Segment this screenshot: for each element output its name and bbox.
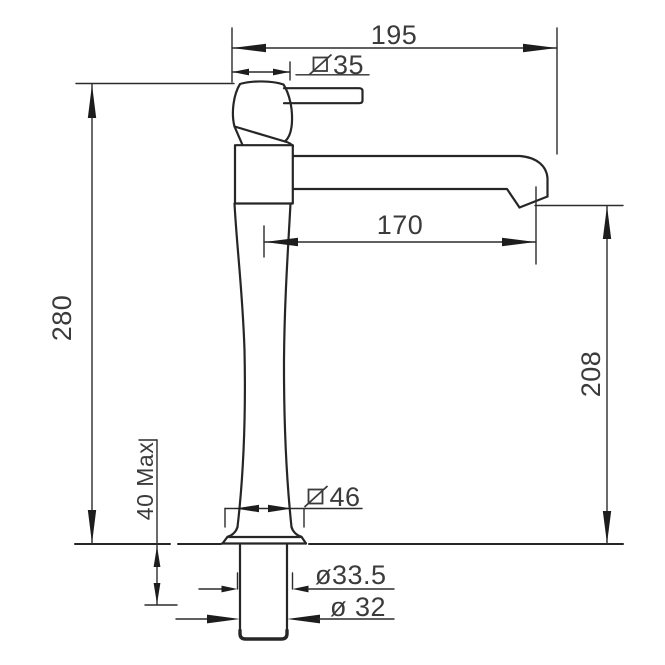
arrowhead-left <box>232 44 266 52</box>
dimension-label-46: 46 <box>330 482 361 512</box>
arrowhead-right <box>273 69 290 76</box>
shank-bottom-cap <box>240 631 287 640</box>
dimension-label-195: 195 <box>371 20 418 50</box>
body-right-profile <box>284 204 292 528</box>
handle-lever <box>284 88 363 103</box>
cartridge-neck <box>235 145 293 203</box>
dimension-base-diameter: 46 <box>225 482 362 527</box>
diameter-icon <box>310 55 332 75</box>
dimension-label-40-max: 40 Max <box>132 442 158 520</box>
dimension-spout-reach: 170 <box>264 187 536 264</box>
dimension-handle-diameter: 35 <box>232 50 369 80</box>
arrowhead-down <box>603 511 611 544</box>
handle-knob-outline <box>233 81 292 141</box>
arrowhead-down <box>88 510 96 544</box>
dimension-deck-thickness: 40 Max <box>132 440 177 605</box>
dimension-label-208: 208 <box>576 351 606 398</box>
arrowhead-right-pointing <box>222 586 238 593</box>
diameter-icon <box>305 486 328 507</box>
dimension-label-33-5: ø33.5 <box>315 560 387 590</box>
technical-drawing-canvas: 195 35 170 280 208 <box>0 0 665 665</box>
base-flare-left <box>223 527 238 544</box>
spout-upper-edge <box>293 156 548 197</box>
arrowhead-left-pointing <box>293 586 309 593</box>
dimension-label-32: ø 32 <box>330 592 386 622</box>
arrowhead-right <box>523 44 557 52</box>
arrowhead-right-pointing <box>207 615 240 624</box>
faucet-dimension-drawing: 195 35 170 280 208 <box>0 0 665 665</box>
arrowhead-left <box>233 69 250 76</box>
dimension-shank-diameter: ø33.5 <box>199 560 394 592</box>
dimension-spout-height: 208 <box>535 206 623 545</box>
arrowhead-down <box>154 583 161 604</box>
dimension-label-170: 170 <box>377 210 424 240</box>
spout-lower-edge <box>293 189 520 208</box>
arrowhead-left <box>265 238 299 246</box>
dimension-label-280: 280 <box>47 295 77 342</box>
dimension-label-35: 35 <box>333 50 364 80</box>
arrowhead-up <box>154 546 161 567</box>
dimension-overall-width: 195 <box>232 20 557 154</box>
arrowhead-up <box>603 206 611 239</box>
base-flare-right <box>292 527 307 544</box>
dimension-inlet-diameter: ø 32 <box>176 592 394 623</box>
arrowhead-right <box>502 238 536 246</box>
arrowhead-up <box>88 85 96 119</box>
body-left-profile <box>235 204 245 528</box>
arrowhead-left-pointing <box>287 615 320 624</box>
